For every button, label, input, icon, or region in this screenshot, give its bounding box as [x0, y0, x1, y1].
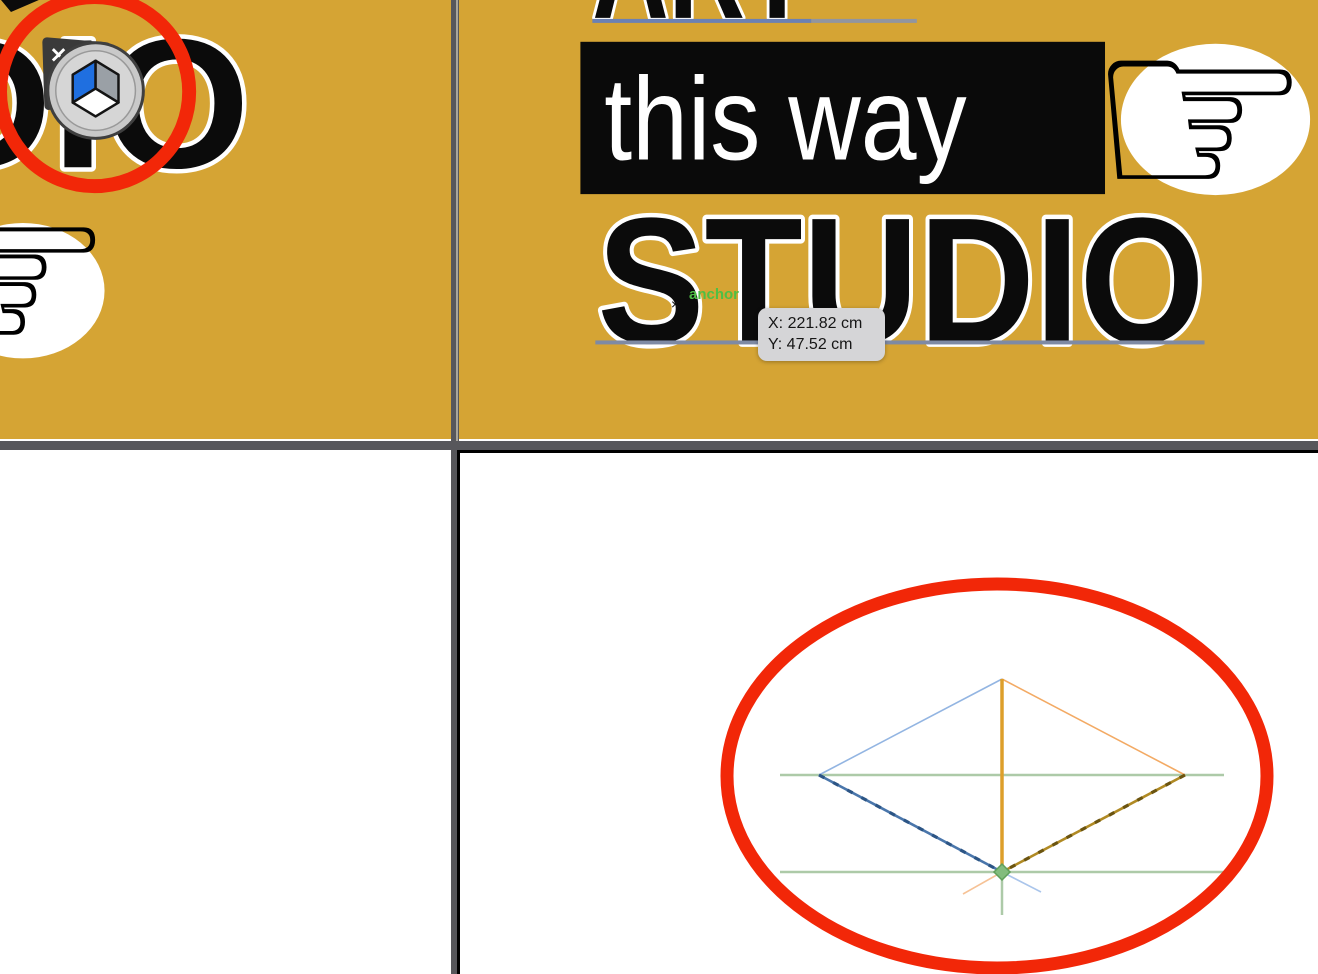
artboard-divider — [456, 0, 458, 441]
pointing-hand-icon[interactable]: ☞ — [1086, 0, 1314, 265]
artboard-guides-right[interactable] — [457, 450, 1318, 974]
art-baseline-tail — [811, 19, 917, 23]
banner-text[interactable]: this way — [604, 53, 967, 184]
artboard-poster-left[interactable]: DIO ☞ ✕ — [0, 0, 451, 441]
cursor-mark: × — [671, 296, 679, 312]
tooltip-y-value: Y: 47.52 cm — [768, 334, 875, 355]
figure-line-edge-top-left — [819, 679, 1002, 775]
figure-line-extension-orange — [963, 872, 1002, 894]
perspective-guide-figure[interactable] — [460, 453, 1318, 974]
canvas-viewport: DIO ☞ ✕ ART — [0, 0, 1318, 974]
tooltip-x-value: X: 221.82 cm — [768, 313, 875, 334]
coordinate-tooltip: X: 221.82 cm Y: 47.52 cm — [758, 308, 885, 361]
isometric-cube-icon — [73, 61, 119, 117]
artboard-poster-right[interactable]: ART this way STUDIO ☞ anchor × X: 221.82… — [459, 0, 1318, 441]
art-baseline — [592, 19, 811, 23]
anchor-point-marker[interactable] — [994, 864, 1010, 880]
artboard-left-graphics: DIO ☞ ✕ — [0, 0, 451, 439]
anchor-label: anchor — [689, 286, 739, 303]
studio-baseline — [595, 340, 1204, 344]
artboard-right-graphics: ART this way STUDIO ☞ — [459, 0, 1318, 439]
cube-3d-badge[interactable]: ✕ — [47, 42, 144, 139]
artboard-blank-left[interactable] — [0, 450, 451, 974]
figure-line-edge-top-right — [1002, 679, 1185, 775]
